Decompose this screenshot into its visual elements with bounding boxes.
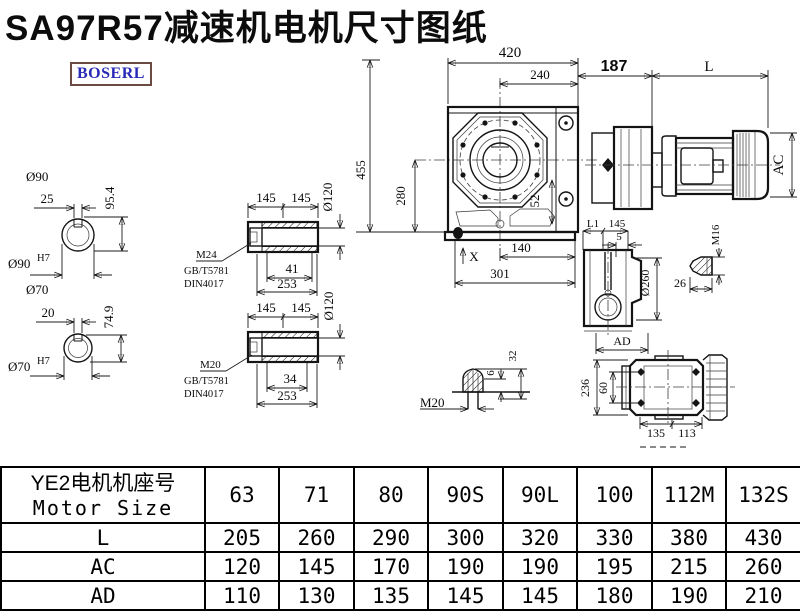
label-std1-lower: GB/T5781 <box>184 376 229 387</box>
dim-60: 60 <box>596 382 610 394</box>
col-header-90l: 90L <box>503 467 577 523</box>
table-cell: 260 <box>726 552 800 581</box>
dim-145-b: 145 <box>291 190 311 205</box>
label-thread-m16: M16 <box>710 224 722 245</box>
table-cell: 145 <box>279 552 354 581</box>
table-row-L: L 205 260 290 300 320 330 380 430 <box>1 523 800 552</box>
dim-280: 280 <box>393 186 408 206</box>
row-label-AC: AC <box>1 552 205 581</box>
dim-145-d: 145 <box>291 300 311 315</box>
dimension-drawing: 420 240 455 280 52 140 301 X <box>0 0 800 466</box>
col-header-132s: 132S <box>726 467 800 523</box>
table-cell: 210 <box>726 581 800 610</box>
label-thread-m20-detail: M20 <box>420 395 445 410</box>
table-cell: 380 <box>652 523 726 552</box>
dim-32: 32 <box>507 351 519 362</box>
table-row-AD: AD 110 130 135 145 145 180 190 210 <box>1 581 800 610</box>
row-label-AD: AD <box>1 581 205 610</box>
shaft-section-90: Ø90 25 95.4 Ø90 H7 <box>8 169 128 279</box>
dim-140: 140 <box>511 240 531 255</box>
label-std1-upper: GB/T5781 <box>184 266 229 277</box>
dim-5: 5 <box>616 231 622 243</box>
bolt-detail-m16: M16 26 <box>674 224 725 293</box>
label-std2-upper: DIN4017 <box>184 279 224 290</box>
dim-253-upper: 253 <box>277 276 297 291</box>
table-cell: 300 <box>428 523 503 552</box>
table-cell: 170 <box>354 552 428 581</box>
dim-dia120-upper: Ø120 <box>320 183 335 212</box>
dim-420: 420 <box>499 45 522 61</box>
hollow-shaft-upper: 145 145 Ø120 M24 GB/T5781 DIN4017 41 253 <box>184 183 345 296</box>
dim-dia260: Ø260 <box>638 270 652 297</box>
label-thread-m20: M20 <box>200 359 221 371</box>
col-header-90s: 90S <box>428 467 503 523</box>
table-cell: 290 <box>354 523 428 552</box>
table-cell: 215 <box>652 552 726 581</box>
dim-key-20: 20 <box>42 305 55 320</box>
dim-key-25: 25 <box>41 191 54 206</box>
table-row-AC: AC 120 145 170 190 190 195 215 260 <box>1 552 800 581</box>
dim-301: 301 <box>490 266 510 281</box>
dim-240: 240 <box>530 67 550 82</box>
dim-455: 455 <box>353 160 368 180</box>
table-cell: 135 <box>354 581 428 610</box>
gearbox-front-view: 420 240 455 280 52 140 301 X <box>353 45 600 288</box>
dim-145-a: 145 <box>256 190 276 205</box>
dim-AC: AC <box>771 155 787 176</box>
dim-145-c: 145 <box>256 300 276 315</box>
col-header-63: 63 <box>205 467 279 523</box>
col-header-71: 71 <box>279 467 354 523</box>
table-cell: 190 <box>652 581 726 610</box>
axis-x-label: X <box>469 249 479 264</box>
dim-34: 34 <box>284 371 298 386</box>
bolt-detail-m20: M20 6 32 <box>420 351 530 411</box>
label-fit-90: H7 <box>37 253 50 264</box>
table-header-motor-size: YE2电机机座号 Motor Size <box>1 467 205 523</box>
label-fit-70: H7 <box>37 356 50 367</box>
table-cell: 110 <box>205 581 279 610</box>
table-cell: 120 <box>205 552 279 581</box>
motor-body <box>676 138 733 194</box>
dim-41: 41 <box>286 261 299 276</box>
table-cell: 430 <box>726 523 800 552</box>
row-label-L: L <box>1 523 205 552</box>
table-cell: 330 <box>577 523 652 552</box>
label-dia70: Ø70 <box>26 282 48 297</box>
dim-6: 6 <box>485 370 497 376</box>
dim-145-side: 145 <box>609 218 626 230</box>
motor-side-view: 187 L AC <box>578 58 797 209</box>
dim-L: L <box>704 59 713 75</box>
dim-236: 236 <box>578 379 592 397</box>
label-bore-70: Ø70 <box>8 359 30 374</box>
table-cell: 195 <box>577 552 652 581</box>
motor-size-table: YE2电机机座号 Motor Size 63 71 80 90S 90L 100… <box>0 466 800 611</box>
table-cell: 260 <box>279 523 354 552</box>
dim-dia120-lower: Ø120 <box>321 292 336 321</box>
label-thread-m24: M24 <box>196 249 217 261</box>
dim-187: 187 <box>601 58 628 75</box>
label-dia90: Ø90 <box>26 169 48 184</box>
dim-AD: AD <box>613 334 631 348</box>
hollow-shaft-lower: 145 145 Ø120 M20 GB/T5781 DIN4017 34 253 <box>184 292 345 408</box>
gearbox-side-view: L1 145 5 Ø260 AD <box>583 218 662 354</box>
table-cell: 190 <box>503 552 577 581</box>
table-cell: 180 <box>577 581 652 610</box>
table-header-cn: YE2电机机座号 <box>2 471 204 496</box>
dim-52: 52 <box>527 195 542 208</box>
dim-135: 135 <box>647 426 665 440</box>
label-std2-lower: DIN4017 <box>184 389 224 400</box>
col-header-80: 80 <box>354 467 428 523</box>
dim-113: 113 <box>678 426 696 440</box>
dim-L1: L1 <box>587 218 599 230</box>
table-cell: 145 <box>428 581 503 610</box>
table-cell: 145 <box>503 581 577 610</box>
table-cell: 205 <box>205 523 279 552</box>
label-bore-90: Ø90 <box>8 256 30 271</box>
col-header-100: 100 <box>577 467 652 523</box>
table-header-en: Motor Size <box>2 496 204 520</box>
dim-95-4: 95.4 <box>102 186 117 209</box>
dim-253-lower: 253 <box>277 388 297 403</box>
col-header-112m: 112M <box>652 467 726 523</box>
gearbox-top-view: 236 60 135 113 <box>578 350 735 447</box>
table-header-row: YE2电机机座号 Motor Size 63 71 80 90S 90L 100… <box>1 467 800 523</box>
table-cell: 130 <box>279 581 354 610</box>
gearbox-housing <box>448 107 578 232</box>
shaft-section-70: Ø70 20 74.9 Ø70 H7 <box>8 282 127 380</box>
dim-26: 26 <box>674 276 686 290</box>
dim-74-9: 74.9 <box>101 306 116 329</box>
table-cell: 190 <box>428 552 503 581</box>
table-cell: 320 <box>503 523 577 552</box>
